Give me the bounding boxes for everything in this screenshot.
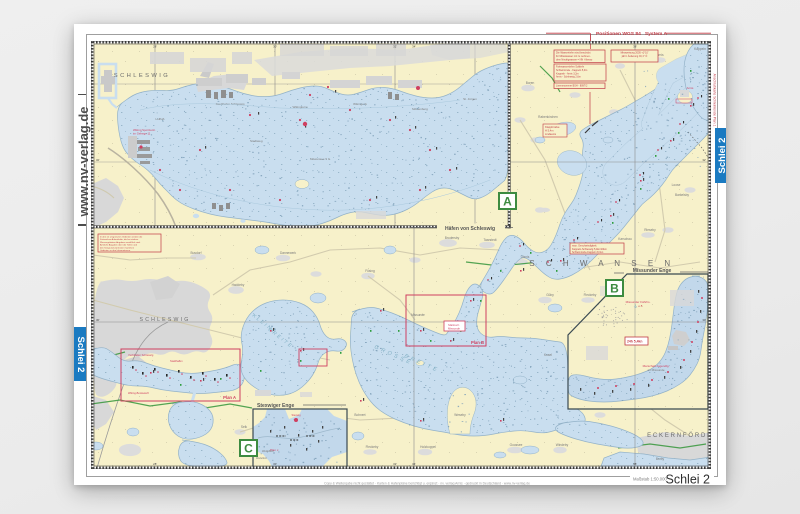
- svg-text:32': 32': [393, 462, 397, 466]
- svg-text:Borby: Borby: [656, 457, 665, 461]
- svg-text:Weseby: Weseby: [454, 413, 466, 417]
- svg-text:Wiking-Bootswerft: Wiking-Bootswerft: [128, 391, 149, 395]
- svg-text:Bohnert: Bohnert: [354, 413, 365, 417]
- svg-text:Barkelsby: Barkelsby: [675, 193, 689, 197]
- svg-text:32': 32': [393, 45, 397, 49]
- svg-text:C: C: [244, 442, 253, 456]
- svg-text:Möwensee 9 G.: Möwensee 9 G.: [310, 157, 331, 161]
- svg-text:Gebieten zu den Informationen.: Gebieten zu den Informationen.: [100, 249, 131, 252]
- svg-text:Stadthafen: Stadthafen: [170, 359, 183, 363]
- svg-text:Wassergebieten Angaben ermäßli: Wassergebieten Angaben ermäßlich sind.: [100, 241, 141, 244]
- svg-text:Schleimünde-Kappeln 8,1kn: Schleimünde-Kappeln 8,1kn: [572, 251, 604, 254]
- svg-text:Loose: Loose: [672, 183, 681, 187]
- svg-text:Arnis: Arnis: [687, 86, 694, 90]
- svg-text:Kappeln: Kappeln: [694, 47, 706, 51]
- svg-text:⚓ o.5: ⚓ o.5: [634, 304, 643, 308]
- svg-text:Zeitzeichen Aufenthalte, die b: Zeitzeichen Aufenthalte, die bei starken: [100, 238, 139, 241]
- svg-text:24h 5,4kn: 24h 5,4kn: [627, 340, 642, 344]
- svg-text:Haddeby: Haddeby: [232, 283, 245, 287]
- svg-text:Stadtweg: Stadtweg: [250, 139, 263, 143]
- svg-text:Möwenberg: Möwenberg: [412, 107, 428, 111]
- svg-text:Busdorf: Busdorf: [191, 251, 202, 255]
- svg-text:Windeby: Windeby: [556, 443, 569, 447]
- svg-text:Positionen WGS 84 System A: Positionen WGS 84 System A: [596, 31, 667, 37]
- svg-text:Plan A: Plan A: [223, 395, 236, 400]
- svg-text:30': 30': [273, 45, 277, 49]
- svg-text:Güby: Güby: [546, 293, 554, 297]
- svg-text:dem Niedrigwasser = NN -Niveau: dem Niedrigwasser = NN -Niveau: [556, 58, 593, 61]
- svg-text:Goossee: Goossee: [510, 443, 523, 447]
- svg-text:In den rot umgrenzten Gebieten: In den rot umgrenzten Gebieten werden di…: [100, 235, 143, 238]
- svg-text:30': 30': [702, 318, 706, 322]
- svg-text:Lizenznummer BSH - 8097/2: Lizenznummer BSH - 8097/2: [556, 85, 588, 88]
- svg-text:an Missunde: an Missunde: [647, 368, 664, 372]
- svg-text:jährl. Änderung ±0,1° Ö: jährl. Änderung ±0,1° Ö: [621, 55, 648, 58]
- svg-text:Klappbrücke: Klappbrücke: [545, 125, 560, 129]
- svg-text:Stexwig: Stexwig: [291, 413, 301, 417]
- svg-text:Missunder Enge: Missunder Enge: [633, 268, 672, 274]
- svg-text:38': 38': [633, 45, 637, 49]
- svg-text:32': 32': [96, 158, 100, 162]
- svg-text:A: A: [503, 195, 512, 209]
- svg-text:Fleckeby: Fleckeby: [584, 293, 597, 297]
- svg-text:30': 30': [273, 462, 277, 466]
- svg-text:SCHLESWIG: SCHLESWIG: [114, 73, 170, 79]
- svg-text:H 5,4m: H 5,4m: [545, 129, 553, 133]
- svg-text:Schlei 2: Schlei 2: [666, 473, 711, 487]
- svg-text:32': 32': [702, 158, 706, 162]
- svg-text:Copy & Weitergabe nicht gestat: Copy & Weitergabe nicht gestattet · Kart…: [324, 482, 530, 486]
- svg-text:Rabenkirchen: Rabenkirchen: [538, 115, 558, 119]
- svg-text:Kosel: Kosel: [544, 353, 552, 357]
- svg-text:Dannewerk: Dannewerk: [280, 251, 297, 255]
- svg-text:Ulsnis: Ulsnis: [521, 255, 530, 259]
- svg-text:Rieseby: Rieseby: [644, 228, 656, 232]
- svg-text:28': 28': [153, 462, 157, 466]
- svg-text:Arnis - Schleswig 2: Arnis - Schleswig 2,6m: [556, 76, 581, 79]
- svg-text:Fleckeby: Fleckeby: [366, 445, 379, 449]
- svg-text:B: B: [610, 282, 619, 296]
- svg-text:Missunde: Missunde: [448, 327, 460, 331]
- svg-text:Amtliche Angaben über die Tief: Amtliche Angaben über die Tiefen und: [100, 244, 138, 247]
- svg-text:Anschlußkarte Schleimünde Plan: Anschlußkarte Schleimünde Plan 1: [713, 74, 717, 127]
- svg-text:Wedelfeld: Wedelfeld: [256, 457, 267, 460]
- svg-text:Füsing: Füsing: [365, 269, 375, 273]
- svg-text:34': 34': [412, 45, 416, 49]
- svg-text:Holzkoppel: Holzkoppel: [420, 445, 436, 449]
- svg-text:Wikingeck: Wikingeck: [353, 102, 367, 106]
- svg-text:Lollfuß: Lollfuß: [155, 117, 164, 121]
- svg-text:Häfen von Schleswig: Häfen von Schleswig: [445, 226, 495, 232]
- svg-text:ECKERNFÖRDE: ECKERNFÖRDE: [647, 432, 711, 439]
- svg-text:SCHLESWIG: SCHLESWIG: [140, 317, 191, 323]
- svg-text:Missunde: Missunde: [411, 313, 425, 317]
- svg-text:Wedelfeld: Wedelfeld: [262, 449, 274, 453]
- svg-text:St. Jürgen: St. Jürgen: [463, 97, 477, 101]
- svg-text:Karschau: Karschau: [618, 237, 632, 241]
- svg-text:Yachthafen Schleswig: Yachthafen Schleswig: [128, 353, 154, 357]
- svg-text:38': 38': [633, 462, 637, 466]
- svg-text:Plan B: Plan B: [471, 340, 484, 345]
- svg-text:im Gehege 11: im Gehege 11: [133, 132, 151, 136]
- svg-text:Stexwiger Enge: Stexwiger Enge: [257, 403, 294, 409]
- svg-text:Selk: Selk: [241, 425, 248, 429]
- svg-text:Brodersby: Brodersby: [445, 236, 460, 240]
- svg-text:34': 34': [412, 462, 416, 466]
- svg-text:30': 30': [96, 318, 100, 322]
- svg-text:Maßstab 1:50.000: Maßstab 1:50.000: [633, 477, 667, 482]
- svg-text:Taarstedt: Taarstedt: [483, 238, 496, 242]
- svg-text:Boren: Boren: [526, 81, 535, 85]
- svg-text:28': 28': [153, 45, 157, 49]
- svg-text:den Seegrund wärmsten maritime: den Seegrund wärmsten maritimen: [100, 246, 135, 249]
- svg-text:Lindaunis: Lindaunis: [545, 132, 557, 136]
